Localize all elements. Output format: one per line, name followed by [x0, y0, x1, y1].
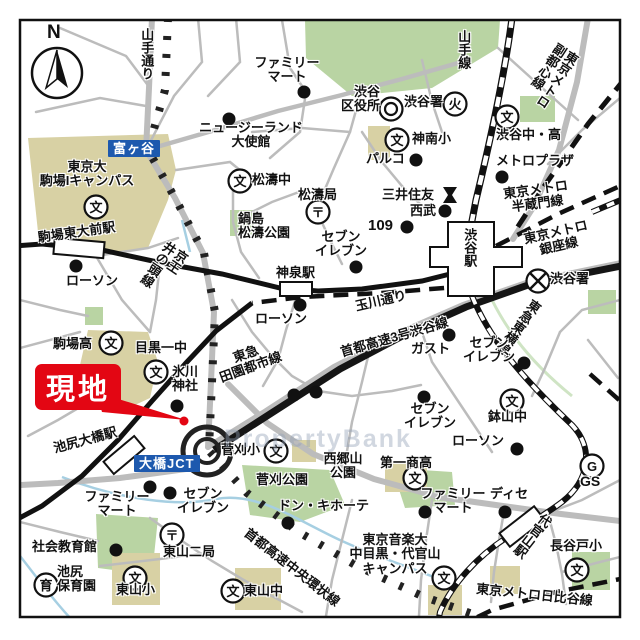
- shibuya-109-label: 109: [368, 218, 393, 235]
- nz-embassy-label: ニュージーランド 大使館: [194, 121, 308, 150]
- don-quijote-label: ドン・キホーテ: [278, 499, 369, 513]
- mitsui-sumitomo-label: 三井住友: [382, 188, 434, 202]
- hasedo-elementary-label: 長谷戸小: [550, 539, 602, 553]
- daikanyama-station-label: 代官山駅: [510, 510, 553, 560]
- meguro-1-jhs-label: 目黒一中: [135, 341, 187, 355]
- komaba-high-label: 駒場高: [53, 337, 92, 351]
- parco-label: パルコ: [366, 152, 405, 166]
- shibuya-fire-station-label: 渋谷署: [404, 95, 443, 109]
- shoto-jhs-label: 松濤中: [252, 173, 291, 187]
- hibiya-line-label: 東京メトロ日比谷線: [476, 582, 594, 608]
- tamagawa-dori-label: 玉川通り: [354, 288, 408, 314]
- shibuya-station-label: 渋谷駅: [462, 228, 476, 267]
- tomigaya-sign: 富ヶ谷: [108, 140, 160, 157]
- fukutoshin-line-label: 東京メトロ 副都心線: [521, 40, 580, 110]
- shakai-kyoikukan-label: 社会教育館: [32, 540, 97, 554]
- keio-inokashira-line-label: 京王 井の頭線: [137, 238, 190, 297]
- lawson-center-label: ローソン: [255, 312, 307, 326]
- seibu-label: 西武: [410, 204, 436, 218]
- higashiyama-2-post-label: 東山二局: [163, 545, 215, 559]
- ginza-line-label: 東京メトロ 銀座線: [522, 218, 593, 261]
- seven-eleven-east-label: セブン イレブン: [460, 336, 518, 365]
- dise-label: ディセ: [490, 487, 528, 501]
- denentoshi-line-label: 東急 田園都市線: [204, 333, 293, 389]
- higashiyama-jhs-label: 東山中: [244, 584, 283, 598]
- yamanote-line-label: 山手線: [456, 30, 470, 69]
- seven-eleven-center-label: セブン イレブン: [312, 230, 370, 259]
- familymart-top-label: ファミリー マート: [250, 56, 324, 85]
- tokyo-ongaku-univ-label: 東京音楽大 中目黒・代官山 キャンパス: [346, 533, 444, 576]
- metro-plaza-label: メトロプラザ: [496, 154, 574, 168]
- hachiyama-jhs-label: 鉢山中: [488, 410, 527, 424]
- shibuya-jhs-hs-label: 渋谷中・高: [496, 128, 561, 142]
- ikejiri-hoikuen-label: 池尻 保育園: [57, 565, 96, 594]
- gas-station-label: GS: [580, 474, 600, 489]
- familymart-southwest-label: ファミリー マート: [78, 490, 156, 519]
- watermark: PropertyBank: [224, 425, 412, 454]
- shibuya-ward-office-label: 渋谷 区役所: [332, 85, 380, 114]
- nabeshima-shoto-park-label: 鍋島 松濤公園: [238, 212, 296, 241]
- shoto-post-label: 松濤局: [298, 188, 337, 202]
- compass-n-label: N: [47, 22, 61, 44]
- seven-eleven-jct-label: セブン イレブン: [174, 487, 232, 516]
- sugekari-park-label: 菅刈公園: [256, 473, 308, 487]
- lawson-south-label: ローソン: [452, 434, 504, 448]
- shinsen-station-label: 神泉駅: [276, 266, 315, 280]
- familymart-southeast-label: ファミリー マート: [416, 487, 490, 516]
- saigoyama-park-label: 西郷山 公園: [316, 452, 370, 481]
- ikejiri-ohashi-station-label: 池尻大橋駅: [52, 425, 119, 456]
- daiichi-shoko-label: 第一商高: [380, 456, 432, 470]
- jinnan-elementary-label: 神南小: [412, 132, 451, 146]
- genchi-callout: 現地: [35, 364, 121, 410]
- labels-layer: 山手通り山手線東京メトロ 副都心線ファミリー マートニュージーランド 大使館渋谷…: [0, 0, 640, 640]
- gusto-label: ガスト: [411, 342, 450, 356]
- komaba-todaimae-station-label: 駒場東大前駅: [37, 220, 116, 245]
- shibuya-police-label: 渋谷署: [550, 272, 589, 286]
- map-canvas: 火〒〒育G文文文文文文文文文文文文文 山手通り山手線東京メトロ 副都心線ファミリ…: [0, 0, 640, 640]
- lawson-west-label: ローソン: [66, 274, 118, 288]
- hanzomon-line-label: 東京メトロ 半蔵門線: [499, 178, 574, 216]
- higashiyama-elementary-label: 東山小: [116, 583, 155, 597]
- hikawa-shrine-label: 氷川 神社: [164, 365, 206, 394]
- todai-komaba-campus-label: 東京大 駒場Iキャンパス: [34, 160, 140, 189]
- ohashi-jct-sign: 大橋JCT: [134, 455, 200, 472]
- yamate-dori-label: 山手通り: [139, 28, 153, 80]
